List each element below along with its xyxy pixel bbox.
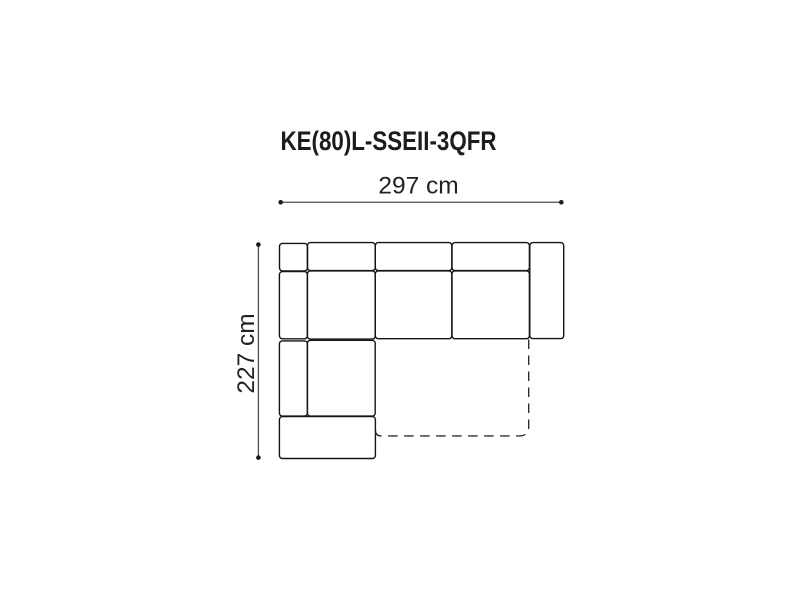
svg-text:227 cm: 227 cm [233, 313, 260, 393]
svg-text:KE(80)L-SSEII-3QFR: KE(80)L-SSEII-3QFR [281, 126, 497, 156]
svg-text:297 cm: 297 cm [378, 172, 458, 199]
